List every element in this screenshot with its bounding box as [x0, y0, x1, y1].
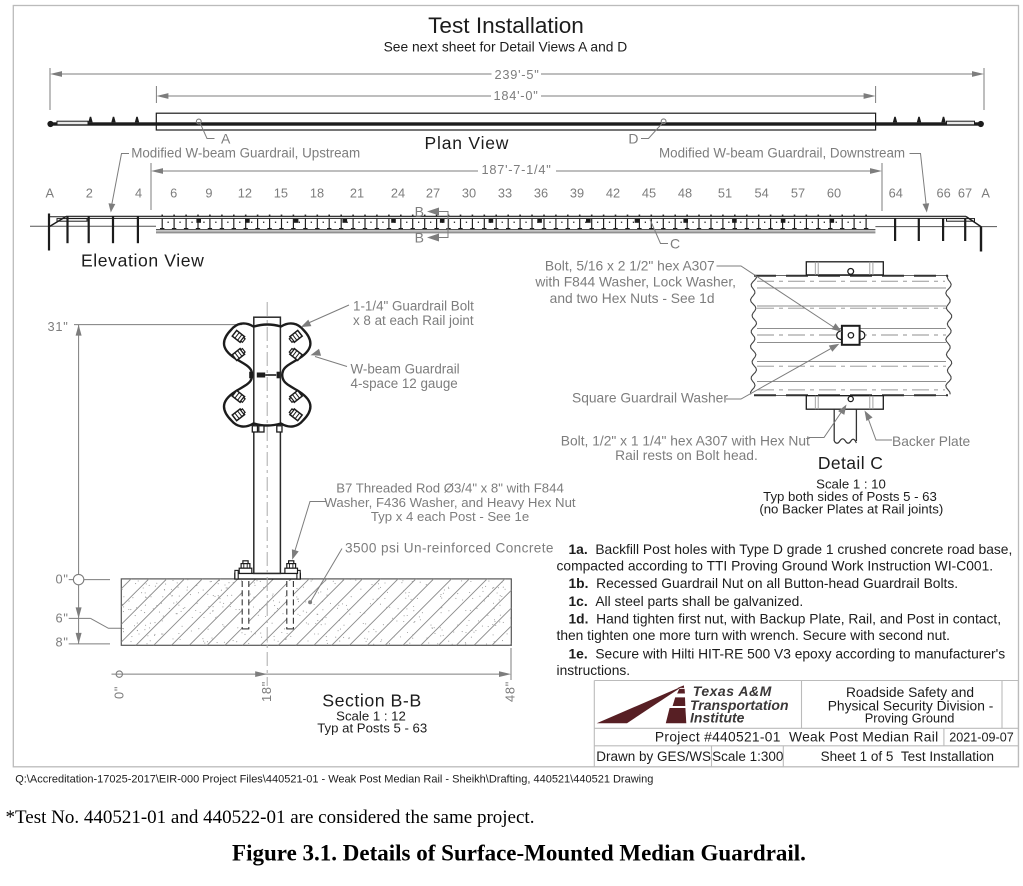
svg-text:31": 31" — [47, 319, 68, 334]
svg-text:compacted according to TTI Pro: compacted according to TTI Proving Groun… — [557, 559, 994, 574]
svg-text:W-beam Guardrail: W-beam Guardrail — [351, 362, 460, 377]
svg-text:60: 60 — [827, 186, 841, 201]
svg-text:6: 6 — [170, 186, 177, 201]
svg-text:See next sheet for Detail View: See next sheet for Detail Views A and D — [384, 40, 628, 55]
svg-text:Plan View: Plan View — [425, 133, 510, 153]
svg-text:64: 64 — [889, 186, 903, 201]
svg-text:21: 21 — [350, 186, 364, 201]
svg-text:18": 18" — [259, 681, 274, 702]
svg-text:0": 0" — [111, 686, 126, 699]
svg-text:B: B — [415, 230, 424, 246]
svg-text:*Test No. 440521-01 and 440522: *Test No. 440521-01 and 440522-01 are co… — [6, 807, 535, 828]
svg-text:A: A — [221, 131, 231, 147]
svg-text:27: 27 — [426, 186, 440, 201]
svg-text:Typ at Posts 5 - 63: Typ at Posts 5 - 63 — [317, 721, 427, 736]
svg-text:9: 9 — [205, 186, 212, 201]
svg-text:Rail rests on Bolt head.: Rail rests on Bolt head. — [615, 448, 758, 463]
svg-text:184'-0": 184'-0" — [494, 88, 539, 103]
svg-text:(no Backer Plates at Rail join: (no Backer Plates at Rail joints) — [759, 502, 943, 517]
svg-text:Square Guardrail Washer: Square Guardrail Washer — [572, 390, 728, 405]
svg-text:Modified W-beam Guardrail, Ups: Modified W-beam Guardrail, Upstream — [131, 146, 360, 161]
svg-text:and two Hex Nuts - See 1d: and two Hex Nuts - See 1d — [550, 291, 715, 306]
svg-text:36: 36 — [534, 186, 548, 201]
svg-text:1b. Recessed Guardrail Nut on: 1b. Recessed Guardrail Nut on all Button… — [569, 576, 959, 591]
svg-text:Typ x 4 each Post - See 1e: Typ x 4 each Post - See 1e — [371, 509, 529, 524]
svg-text:Proving Ground: Proving Ground — [865, 710, 955, 725]
svg-text:Sheet 1 of 5 Test Installatio: Sheet 1 of 5 Test Installation — [821, 749, 994, 764]
svg-text:Modified W-beam Guardrail, Dow: Modified W-beam Guardrail, Downstream — [659, 146, 905, 161]
svg-text:48: 48 — [678, 186, 692, 201]
svg-text:Drawn by GES/WS: Drawn by GES/WS — [596, 749, 711, 764]
svg-text:C: C — [670, 236, 680, 252]
svg-text:54: 54 — [754, 186, 768, 201]
svg-text:x 8 at each Rail joint: x 8 at each Rail joint — [353, 313, 474, 328]
svg-text:Elevation View: Elevation View — [81, 251, 204, 271]
svg-text:Figure 3.1. Details of Surface: Figure 3.1. Details of Surface-Mounted M… — [232, 841, 806, 866]
svg-text:Detail C: Detail C — [818, 453, 883, 473]
svg-text:Q:\Accreditation-17025-2017\EI: Q:\Accreditation-17025-2017\EIR-000 Proj… — [15, 774, 653, 786]
svg-text:D: D — [628, 131, 638, 147]
svg-text:Test Installation: Test Installation — [428, 13, 584, 38]
svg-text:Washer, F436 Washer, and Heavy: Washer, F436 Washer, and Heavy Hex Nut — [324, 495, 575, 510]
svg-text:33: 33 — [498, 186, 512, 201]
svg-text:30: 30 — [462, 186, 476, 201]
svg-text:Backer Plate: Backer Plate — [892, 434, 971, 449]
svg-text:0": 0" — [56, 572, 69, 587]
svg-text:67: 67 — [958, 186, 972, 201]
svg-text:Scale 1:300: Scale 1:300 — [712, 749, 783, 764]
svg-text:2: 2 — [86, 186, 93, 201]
svg-text:A: A — [981, 186, 990, 201]
svg-text:15: 15 — [274, 186, 288, 201]
svg-text:39: 39 — [570, 186, 584, 201]
svg-text:12: 12 — [238, 186, 252, 201]
svg-text:instructions.: instructions. — [557, 663, 631, 678]
svg-text:1d. Hand tighten first nut, w: 1d. Hand tighten first nut, with Backup … — [569, 611, 1002, 626]
svg-text:24: 24 — [391, 186, 405, 201]
svg-text:8": 8" — [56, 635, 69, 650]
svg-text:48": 48" — [503, 681, 518, 702]
svg-text:A: A — [46, 186, 55, 201]
svg-text:2021-09-07: 2021-09-07 — [949, 731, 1013, 745]
svg-text:1a. Backfill Post holes with: 1a. Backfill Post holes with Type D grad… — [569, 542, 1013, 557]
svg-text:1-1/4" Guardrail Bolt: 1-1/4" Guardrail Bolt — [353, 299, 474, 314]
svg-text:45: 45 — [642, 186, 656, 201]
svg-text:Project #440521-01 Weak Post: Project #440521-01 Weak Post Median Rail — [655, 730, 939, 745]
svg-text:4: 4 — [135, 186, 142, 201]
svg-text:66: 66 — [936, 186, 950, 201]
svg-text:1e. Secure with Hilti HIT-RE: 1e. Secure with Hilti HIT-RE 500 V3 epox… — [569, 646, 1006, 661]
svg-text:6": 6" — [56, 610, 69, 625]
svg-text:B7 Threaded Rod Ø3/4" x 8" wit: B7 Threaded Rod Ø3/4" x 8" with F844 — [336, 480, 564, 495]
svg-text:Bolt, 5/16 x 2 1/2" hex A307: Bolt, 5/16 x 2 1/2" hex A307 — [545, 259, 715, 274]
svg-text:Institute: Institute — [690, 710, 745, 726]
svg-text:4-space 12 gauge: 4-space 12 gauge — [351, 376, 458, 391]
svg-text:B: B — [415, 204, 424, 220]
svg-text:Bolt, 1/2" x 1 1/4" hex A307 w: Bolt, 1/2" x 1 1/4" hex A307 with Hex Nu… — [561, 434, 810, 449]
svg-text:51: 51 — [718, 186, 732, 201]
svg-text:with F844 Washer, Lock Washer,: with F844 Washer, Lock Washer, — [534, 275, 736, 290]
svg-text:57: 57 — [791, 186, 805, 201]
svg-text:then tighten one more turn wit: then tighten one more turn with wrench. … — [557, 628, 950, 643]
svg-text:239'-5": 239'-5" — [495, 67, 540, 82]
svg-text:18: 18 — [310, 186, 324, 201]
svg-text:42: 42 — [606, 186, 620, 201]
svg-text:1c. All steel parts shall be: 1c. All steel parts shall be galvanized. — [569, 594, 804, 609]
svg-text:187'-7-1/4": 187'-7-1/4" — [481, 162, 551, 177]
svg-text:3500 psi Un-reinforced Concret: 3500 psi Un-reinforced Concrete — [345, 541, 554, 556]
